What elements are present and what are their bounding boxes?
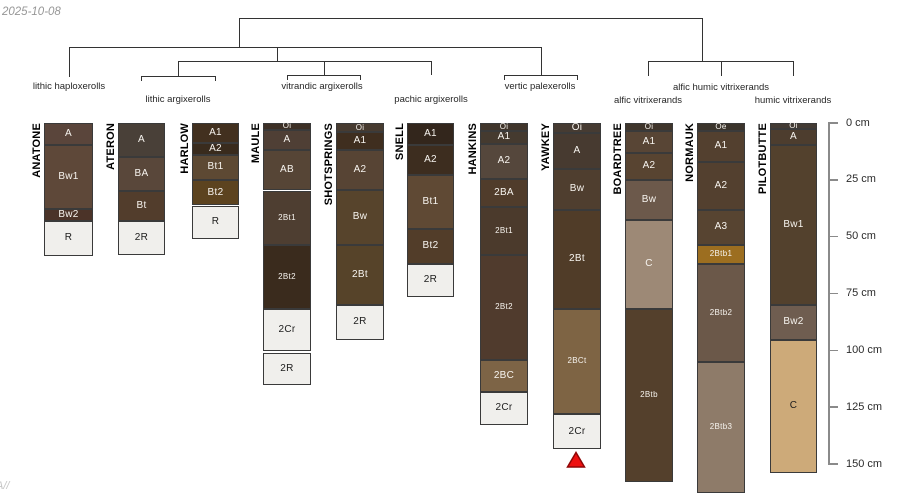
horizon-label: 2Cr [495, 403, 512, 413]
horizon-label: A [790, 132, 797, 142]
horizon-block: 2BA [480, 179, 528, 207]
series-name-label: ANATONE [31, 123, 44, 323]
taxon-label: alfic humic vitrixerands [673, 82, 769, 93]
dendrogram-line [541, 47, 542, 75]
horizon-label: A2 [209, 144, 222, 154]
soil-profile-dendrogram-figure: 2025-10-08 A// lithic haploxerollslithic… [0, 0, 900, 500]
horizon-label: A1 [354, 136, 367, 146]
horizon-block: Oi [336, 123, 384, 132]
horizon-label: Bw1 [58, 172, 78, 182]
horizon-label: BA [135, 169, 149, 179]
horizon-label: A2 [354, 165, 367, 175]
horizon-block: 2Bt [553, 210, 601, 309]
horizon-block: 2BC [480, 360, 528, 392]
horizon-block: A1 [625, 131, 673, 153]
horizon-block: A [770, 129, 817, 145]
date-annotation: 2025-10-08 [2, 6, 61, 18]
horizon-block: Oi [480, 123, 528, 131]
dendrogram-line [69, 47, 70, 77]
horizon-label: AB [280, 165, 294, 175]
horizon-label: A [284, 135, 291, 145]
horizon-block: A3 [697, 210, 745, 245]
horizon-block: 2R [118, 221, 165, 255]
horizon-label: Oi [356, 124, 365, 132]
depth-tick [828, 179, 838, 181]
dendrogram-line [239, 18, 240, 47]
taxon-label: humic vitrixerands [755, 95, 832, 106]
horizon-label: Bw [642, 195, 657, 205]
horizon-label: A2 [424, 155, 437, 165]
horizon-label: 2BCt [568, 357, 587, 365]
horizon-label: Bw [570, 184, 585, 194]
horizon-label: Bw2 [58, 210, 78, 220]
horizon-label: A1 [715, 141, 728, 151]
dendrogram-line [648, 61, 649, 76]
horizon-label: 2Bt [569, 254, 585, 264]
dendrogram-line [721, 61, 722, 76]
horizon-label: 2Btb2 [710, 309, 732, 317]
horizon-block: 2Cr [480, 392, 528, 425]
horizon-label: A1 [643, 137, 656, 147]
horizon-label: Bw1 [783, 220, 803, 230]
horizon-label: Bt1 [423, 197, 439, 207]
horizon-label: R [212, 217, 220, 227]
horizon-block: A2 [336, 150, 384, 190]
horizon-label: 2Cr [278, 325, 295, 335]
horizon-label: 2Btb3 [710, 423, 732, 431]
horizon-block: Oi [625, 123, 673, 131]
series-name-label: ATERON [105, 123, 118, 323]
depth-tick [828, 350, 838, 352]
horizon-block: Oi [263, 123, 311, 130]
depth-tick-label: 150 cm [846, 458, 882, 470]
horizon-label: A2 [498, 156, 511, 166]
horizon-block: 2Bt1 [480, 207, 528, 255]
horizon-block: A1 [336, 132, 384, 150]
dendrogram-line [239, 18, 702, 19]
horizon-label: 2Bt2 [278, 273, 296, 281]
dendrogram-line [324, 61, 325, 75]
series-name-label: HANKINS [467, 123, 480, 323]
dendrogram-line [504, 75, 577, 76]
horizon-block: BA [118, 157, 165, 191]
horizon-block: 2Btb2 [697, 264, 745, 362]
dendrogram-line [277, 47, 278, 61]
horizon-label: Bt2 [423, 241, 439, 251]
horizon-block: A2 [625, 153, 673, 180]
horizon-label: 2R [424, 275, 437, 285]
series-name-label: SHOTSPRINGS [323, 123, 336, 323]
horizon-block: 2Cr [263, 309, 311, 351]
horizon-label: 2Bt1 [495, 227, 513, 235]
taxon-label: vitrandic argixerolls [281, 81, 362, 92]
horizon-block: 2Bt [336, 245, 384, 305]
horizon-block: 2Btb3 [697, 362, 745, 493]
horizon-label: R [65, 233, 73, 243]
dendrogram-line [431, 61, 432, 75]
dendrogram-line [577, 75, 578, 80]
dendrogram-line [702, 18, 703, 61]
horizon-label: Oi [645, 123, 654, 131]
horizon-label: 2Btb [640, 391, 658, 399]
horizon-block: Bw1 [44, 145, 93, 210]
horizon-label: 2BA [494, 188, 514, 198]
horizon-block: Bw2 [770, 305, 817, 340]
taxon-label: pachic argixerolls [394, 94, 467, 105]
horizon-block: A [118, 123, 165, 157]
horizon-block: A2 [480, 144, 528, 179]
horizon-label: 2R [353, 317, 366, 327]
horizon-block: 2Cr [553, 414, 601, 449]
horizon-label: Bt1 [208, 162, 224, 172]
horizon-block: A1 [407, 123, 454, 145]
horizon-block: 2R [407, 264, 454, 297]
dendrogram-line [793, 61, 794, 76]
depth-tick-label: 50 cm [846, 230, 876, 242]
horizon-block: A1 [192, 123, 239, 143]
series-name-label: HARLOW [179, 123, 192, 323]
horizon-block: C [770, 340, 817, 473]
horizon-label: 2BC [494, 371, 514, 381]
dendrogram-line [287, 75, 288, 80]
horizon-block: 2Bt1 [263, 191, 311, 245]
horizon-label: A2 [715, 181, 728, 191]
horizon-block: R [192, 206, 239, 239]
depth-tick-label: 100 cm [846, 344, 882, 356]
horizon-label: A3 [715, 222, 728, 232]
horizon-block: Bw [625, 180, 673, 220]
taxon-label: alfic vitrixerands [614, 95, 682, 106]
horizon-block: A1 [697, 131, 745, 161]
horizon-block: 2Btb1 [697, 245, 745, 264]
horizon-label: C [645, 259, 653, 269]
series-name-label: NORMAUK [684, 123, 697, 323]
horizon-block: Bw [336, 190, 384, 245]
horizon-block: AB [263, 150, 311, 190]
horizon-label: Bt [136, 201, 146, 211]
horizon-block: Bw2 [44, 209, 93, 220]
horizon-block: C [625, 220, 673, 309]
series-name-label: MAULE [250, 123, 263, 323]
horizon-label: 2Bt2 [495, 303, 513, 311]
series-name-label: SNELL [394, 123, 407, 323]
horizon-block: Bt [118, 191, 165, 221]
horizon-block: A [263, 130, 311, 151]
depth-tick [828, 236, 838, 238]
horizon-label: 2Bt [352, 270, 368, 280]
triangle-icon [568, 453, 585, 468]
series-name-label: PILOTBUTTE [757, 123, 770, 323]
horizon-block: R [44, 221, 93, 256]
horizon-block: Bw1 [770, 145, 817, 305]
horizon-block: 2Bt2 [263, 245, 311, 309]
dendrogram-line [141, 76, 215, 77]
horizon-block: Oe [697, 123, 745, 131]
horizon-block: Oi [553, 123, 601, 133]
horizon-label: C [790, 401, 798, 411]
horizon-label: 2Cr [568, 427, 585, 437]
depth-tick [828, 463, 838, 465]
horizon-label: Bw2 [783, 317, 803, 327]
horizon-label: Oe [715, 123, 726, 131]
depth-tick [828, 406, 838, 408]
dendrogram-line [504, 75, 505, 80]
horizon-label: 2Bt1 [278, 214, 296, 222]
horizon-label: A2 [643, 161, 656, 171]
horizon-label: A [138, 135, 145, 145]
horizon-label: A [65, 129, 72, 139]
horizon-block: A2 [407, 145, 454, 175]
horizon-block: A [44, 123, 93, 145]
horizon-block: Bt1 [407, 175, 454, 229]
horizon-label: A [574, 146, 581, 156]
horizon-block: 2R [336, 305, 384, 340]
depth-tick [828, 293, 838, 295]
taxon-label: lithic haploxerolls [33, 81, 105, 92]
dendrogram-line [215, 76, 216, 81]
watermark-text: A// [0, 480, 9, 492]
horizon-block: Bw [553, 169, 601, 210]
horizon-block: A2 [697, 162, 745, 210]
dendrogram-line [69, 47, 541, 48]
horizon-block: 2BCt [553, 309, 601, 414]
taxon-label: vertic palexerolls [505, 81, 576, 92]
horizon-label: 2R [280, 364, 293, 374]
depth-tick-label: 75 cm [846, 287, 876, 299]
horizon-block: A1 [480, 131, 528, 144]
taxon-label: lithic argixerolls [146, 94, 211, 105]
dendrogram-line [141, 76, 142, 81]
horizon-block: A2 [192, 143, 239, 155]
depth-tick-label: 25 cm [846, 173, 876, 185]
series-name-label: BOARDTREE [612, 123, 625, 323]
dendrogram-line [360, 75, 361, 80]
dendrogram-line [178, 61, 179, 76]
horizon-label: 2R [135, 233, 148, 243]
horizon-label: A1 [498, 132, 511, 142]
horizon-label: 2Btb1 [710, 250, 732, 258]
horizon-block: Bt2 [192, 180, 239, 206]
horizon-label: Bt2 [208, 188, 224, 198]
horizon-label: Bw [353, 212, 368, 222]
depth-tick-label: 125 cm [846, 401, 882, 413]
dendrogram-line [178, 61, 431, 62]
horizon-block: Bt1 [192, 155, 239, 180]
horizon-block: 2Bt2 [480, 255, 528, 360]
truncation-marker-triangle [566, 451, 586, 469]
depth-tick [828, 122, 838, 124]
horizon-label: A1 [424, 129, 437, 139]
horizon-block: 2Btb [625, 309, 673, 482]
series-name-label: YAWKEY [540, 123, 553, 323]
horizon-label: Oi [572, 123, 583, 133]
depth-tick-label: 0 cm [846, 117, 870, 129]
horizon-block: A [553, 133, 601, 169]
horizon-label: A1 [209, 128, 222, 138]
horizon-block: 2R [263, 353, 311, 385]
dendrogram-line [287, 75, 360, 76]
horizon-block: Bt2 [407, 229, 454, 264]
